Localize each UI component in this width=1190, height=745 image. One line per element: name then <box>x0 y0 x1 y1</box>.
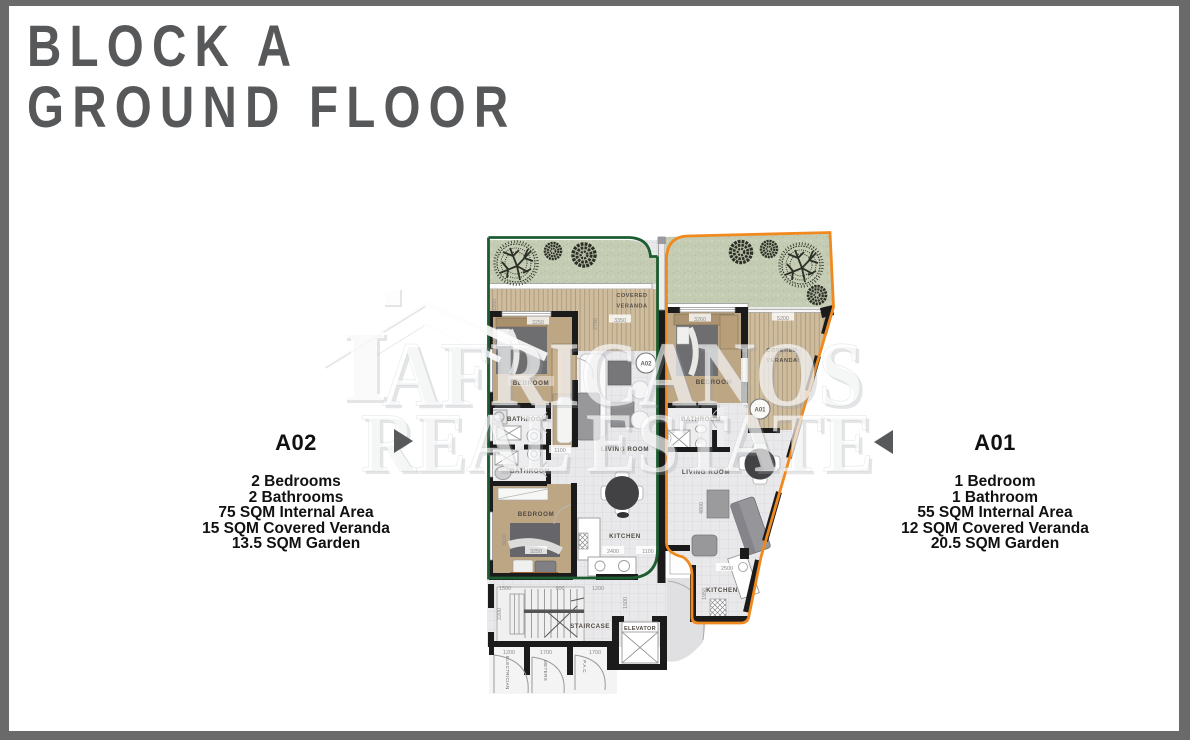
svg-text:VERANDA: VERANDA <box>766 358 797 364</box>
svg-text:1200: 1200 <box>592 586 604 592</box>
svg-text:2500: 2500 <box>721 566 733 572</box>
svg-text:4000: 4000 <box>796 350 802 362</box>
svg-text:STAIRCASE: STAIRCASE <box>570 623 610 630</box>
svg-text:ELEVATOR: ELEVATOR <box>624 626 656 632</box>
svg-text:LIVING ROOM: LIVING ROOM <box>682 469 730 476</box>
svg-text:2200: 2200 <box>497 608 503 620</box>
svg-text:4800: 4800 <box>699 502 705 514</box>
svg-text:BEDROOM: BEDROOM <box>696 379 733 386</box>
svg-text:3350: 3350 <box>614 318 626 324</box>
svg-text:BATHROOM: BATHROOM <box>507 416 547 423</box>
svg-text:1500: 1500 <box>499 586 511 592</box>
svg-text:A01: A01 <box>754 408 766 414</box>
svg-text:BEDROOM: BEDROOM <box>513 380 550 387</box>
svg-text:LIVING ROOM: LIVING ROOM <box>601 446 649 453</box>
svg-text:5200: 5200 <box>777 316 789 322</box>
svg-text:COVERED: COVERED <box>616 293 647 299</box>
svg-text:1950: 1950 <box>702 588 708 600</box>
svg-text:KITCHEN: KITCHEN <box>706 587 738 594</box>
svg-text:1100: 1100 <box>554 448 566 454</box>
svg-text:3250: 3250 <box>532 320 544 326</box>
svg-text:1200: 1200 <box>503 650 515 656</box>
svg-text:1100: 1100 <box>642 549 654 555</box>
svg-text:1500: 1500 <box>623 597 629 609</box>
svg-text:1100: 1100 <box>492 334 498 346</box>
svg-text:900: 900 <box>556 586 565 592</box>
svg-text:1550: 1550 <box>492 299 498 311</box>
svg-text:COVERED: COVERED <box>766 348 797 354</box>
svg-text:700: 700 <box>698 436 704 445</box>
svg-text:3260: 3260 <box>694 317 706 323</box>
svg-text:VERANDA: VERANDA <box>616 304 647 310</box>
svg-text:1700: 1700 <box>589 650 601 656</box>
svg-text:KITCHEN: KITCHEN <box>609 533 641 540</box>
svg-text:3100: 3100 <box>502 534 508 546</box>
svg-text:BEDROOM: BEDROOM <box>518 511 555 518</box>
svg-text:3250: 3250 <box>530 549 542 555</box>
svg-text:A02: A02 <box>640 362 652 368</box>
svg-text:ELECTRICIAN: ELECTRICIAN <box>505 656 510 690</box>
svg-text:P.A.C: P.A.C <box>582 660 587 673</box>
svg-text:2400: 2400 <box>607 549 619 555</box>
svg-text:2750: 2750 <box>593 318 599 330</box>
svg-text:1700: 1700 <box>540 650 552 656</box>
svg-text:METERS: METERS <box>543 660 548 681</box>
